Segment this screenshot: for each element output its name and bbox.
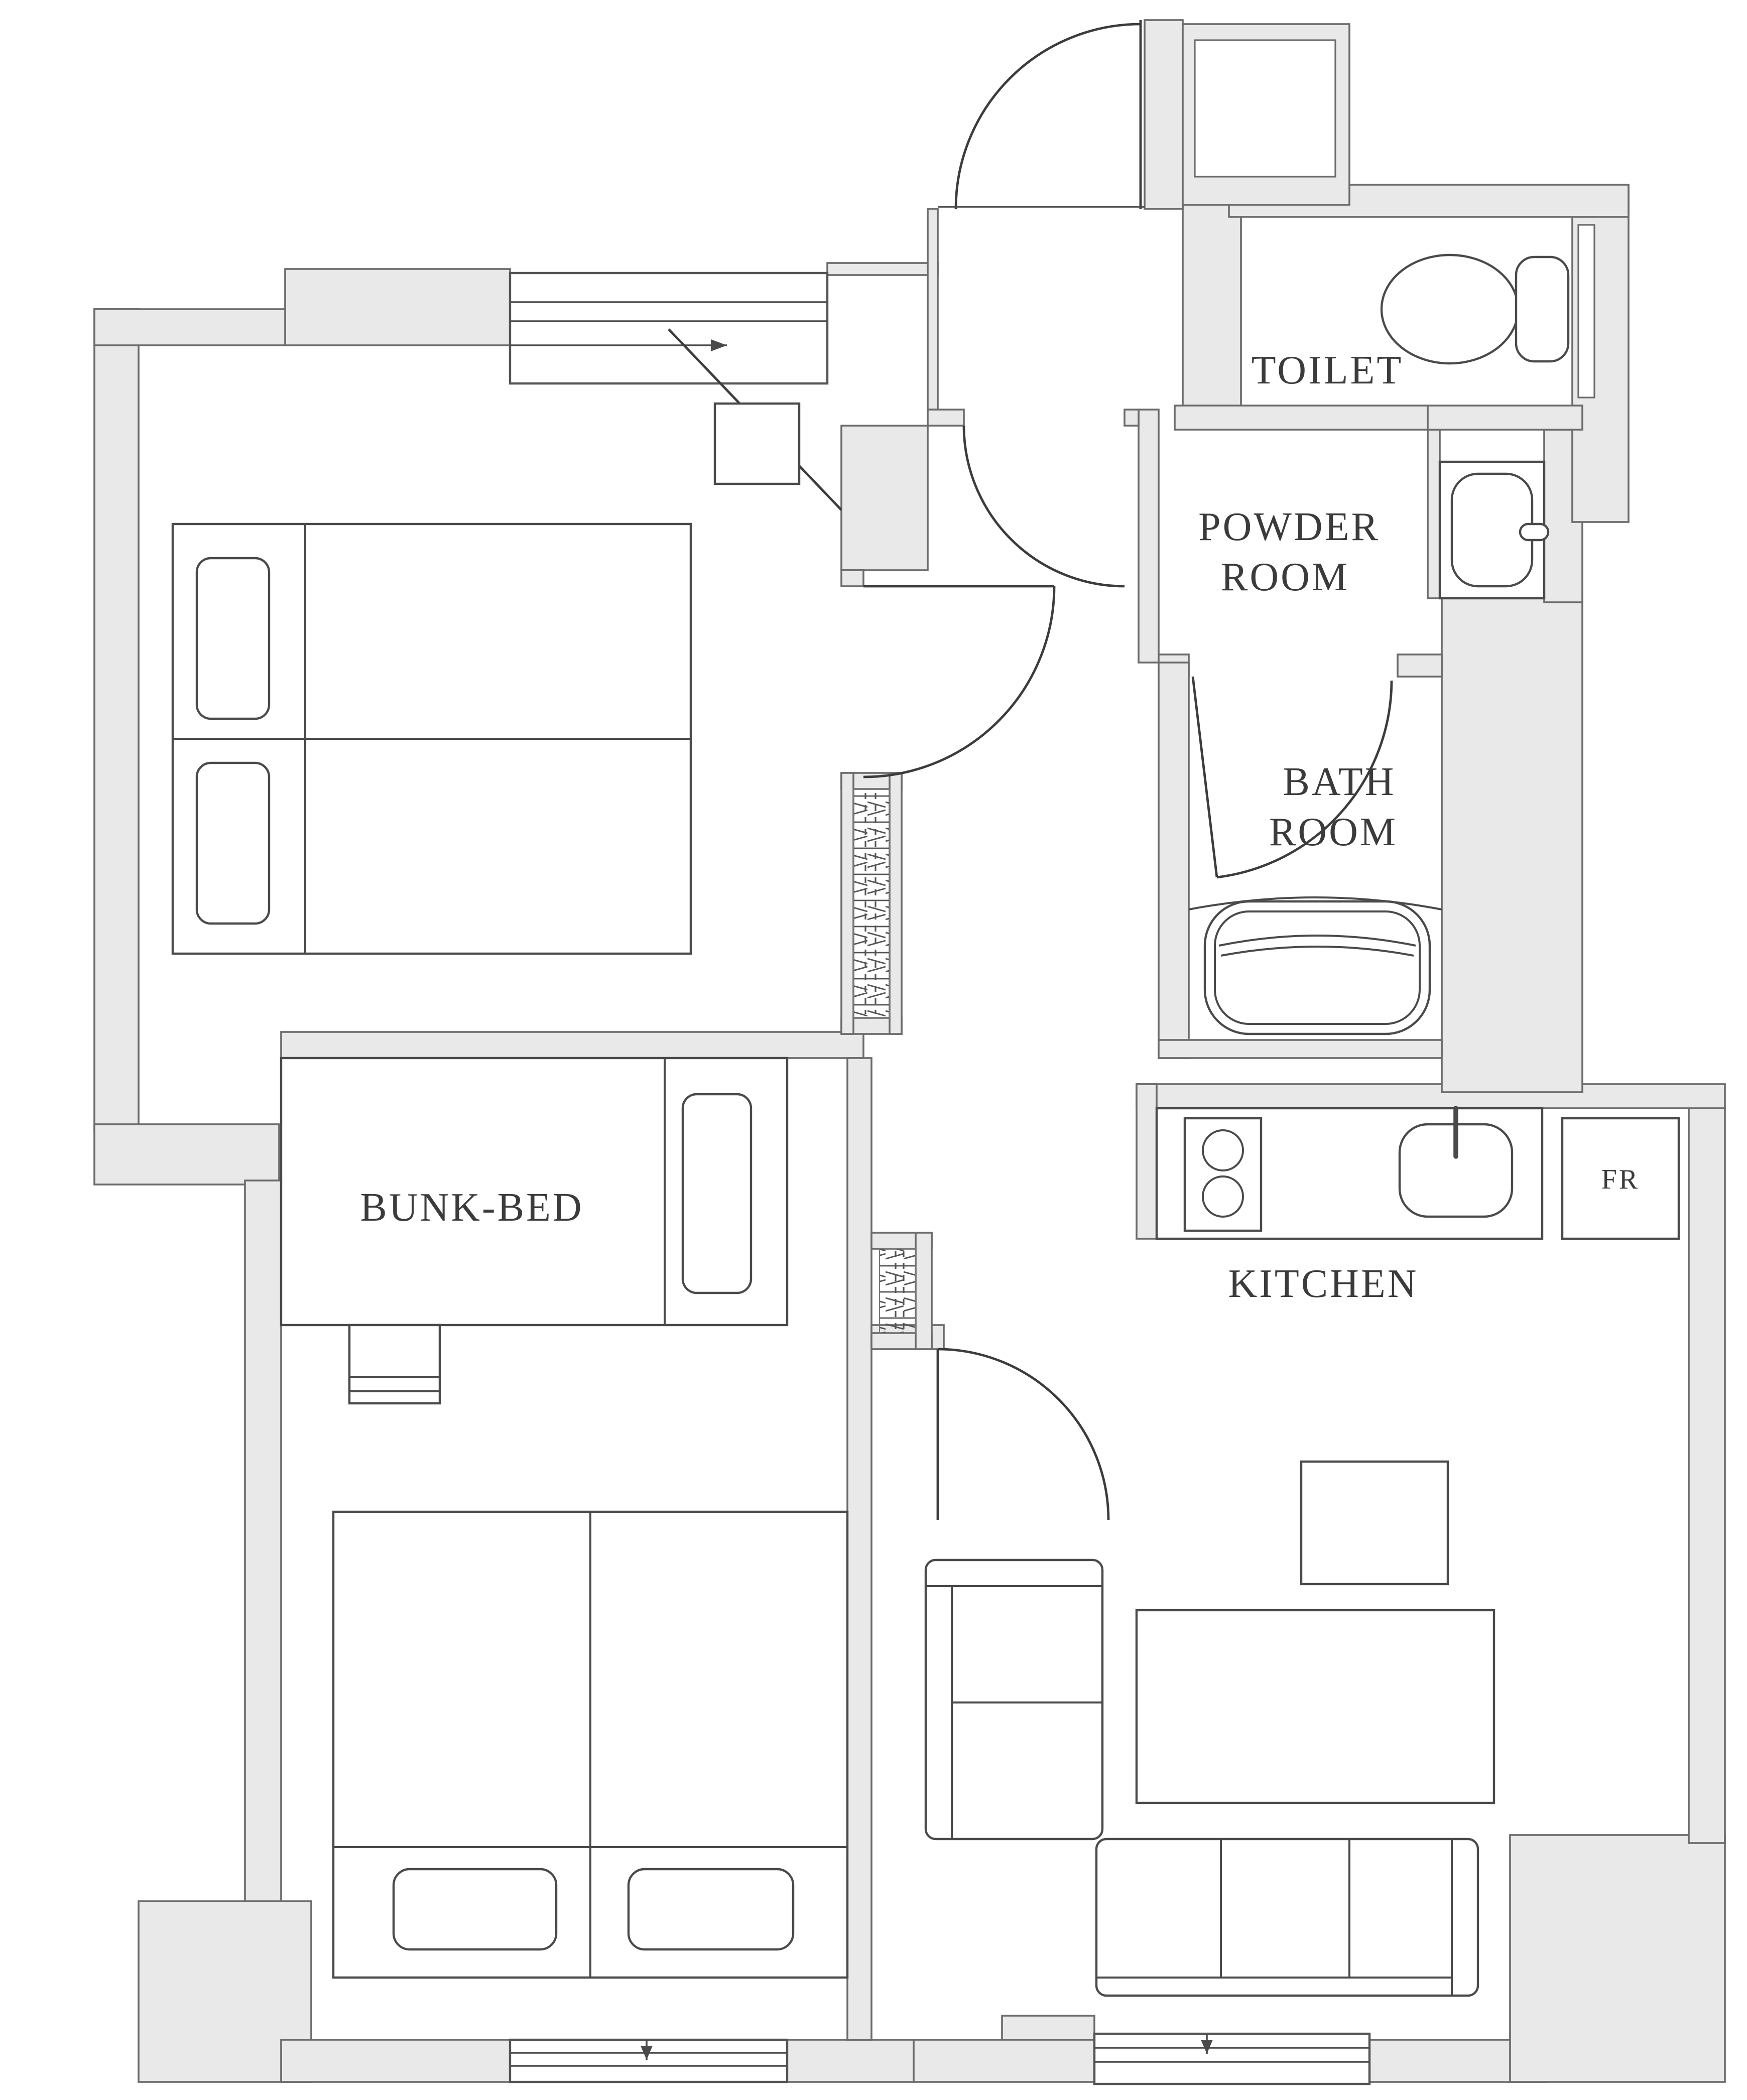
powder-room: POWDER ROOM bbox=[1198, 462, 1548, 599]
toilet-tank-icon bbox=[1516, 257, 1568, 361]
pillow bbox=[197, 558, 269, 719]
stove-icon bbox=[1185, 1118, 1261, 1231]
bath-room: BATH ROOM bbox=[1189, 760, 1442, 1034]
faucet-icon bbox=[1520, 524, 1548, 540]
window-bedroom2 bbox=[510, 2040, 787, 2082]
powder-room-label-line2: ROOM bbox=[1221, 555, 1349, 599]
tv-board bbox=[1301, 1462, 1448, 1584]
toilet-label: TOILET bbox=[1252, 348, 1403, 392]
floor-plan-canvas: TOILET POWDER ROOM BATH ROOM FR KITCHEN bbox=[0, 0, 1747, 2100]
closet-lower bbox=[871, 1233, 932, 1349]
living-room bbox=[926, 1462, 1494, 1996]
closet-hatch bbox=[880, 1249, 916, 1333]
powder-room-door bbox=[964, 426, 1125, 586]
pillow bbox=[683, 1094, 751, 1293]
dining-table bbox=[1137, 1610, 1494, 1803]
toilet-bowl-icon bbox=[1382, 255, 1518, 363]
pillow bbox=[394, 1869, 556, 1949]
closet-upper bbox=[841, 773, 902, 1034]
floor-plan-page: TOILET POWDER ROOM BATH ROOM FR KITCHEN bbox=[0, 0, 1747, 2100]
hallway-door bbox=[863, 586, 1054, 777]
meter-box bbox=[1195, 40, 1335, 177]
fridge-label: FR bbox=[1601, 1164, 1640, 1195]
toilet-room: TOILET bbox=[1252, 255, 1568, 392]
entrance-door bbox=[938, 20, 1145, 209]
closet-hatch bbox=[853, 789, 890, 1018]
bunk-bed-label: BUNK-BED bbox=[360, 1186, 583, 1230]
bedroom2-double-bed bbox=[333, 1512, 847, 1978]
kitchen: FR KITCHEN bbox=[1157, 1108, 1679, 1306]
bedroom1-twin-beds bbox=[173, 524, 691, 954]
bedside-cabinet bbox=[715, 404, 799, 484]
window-living bbox=[1094, 2034, 1369, 2084]
bath-room-label-line2: ROOM bbox=[1269, 810, 1398, 854]
pillow bbox=[629, 1869, 793, 1949]
bath-room-label-line1: BATH bbox=[1283, 760, 1396, 804]
pillow bbox=[197, 763, 269, 924]
powder-room-label-line1: POWDER bbox=[1198, 505, 1380, 549]
window-bedroom1 bbox=[510, 273, 827, 383]
bunk-bed: BUNK-BED bbox=[281, 1058, 787, 1403]
living-room-door bbox=[938, 1349, 1108, 1520]
bathtub-icon bbox=[1205, 901, 1430, 1034]
kitchen-label: KITCHEN bbox=[1228, 1262, 1418, 1306]
wall-cavity bbox=[1578, 225, 1594, 398]
